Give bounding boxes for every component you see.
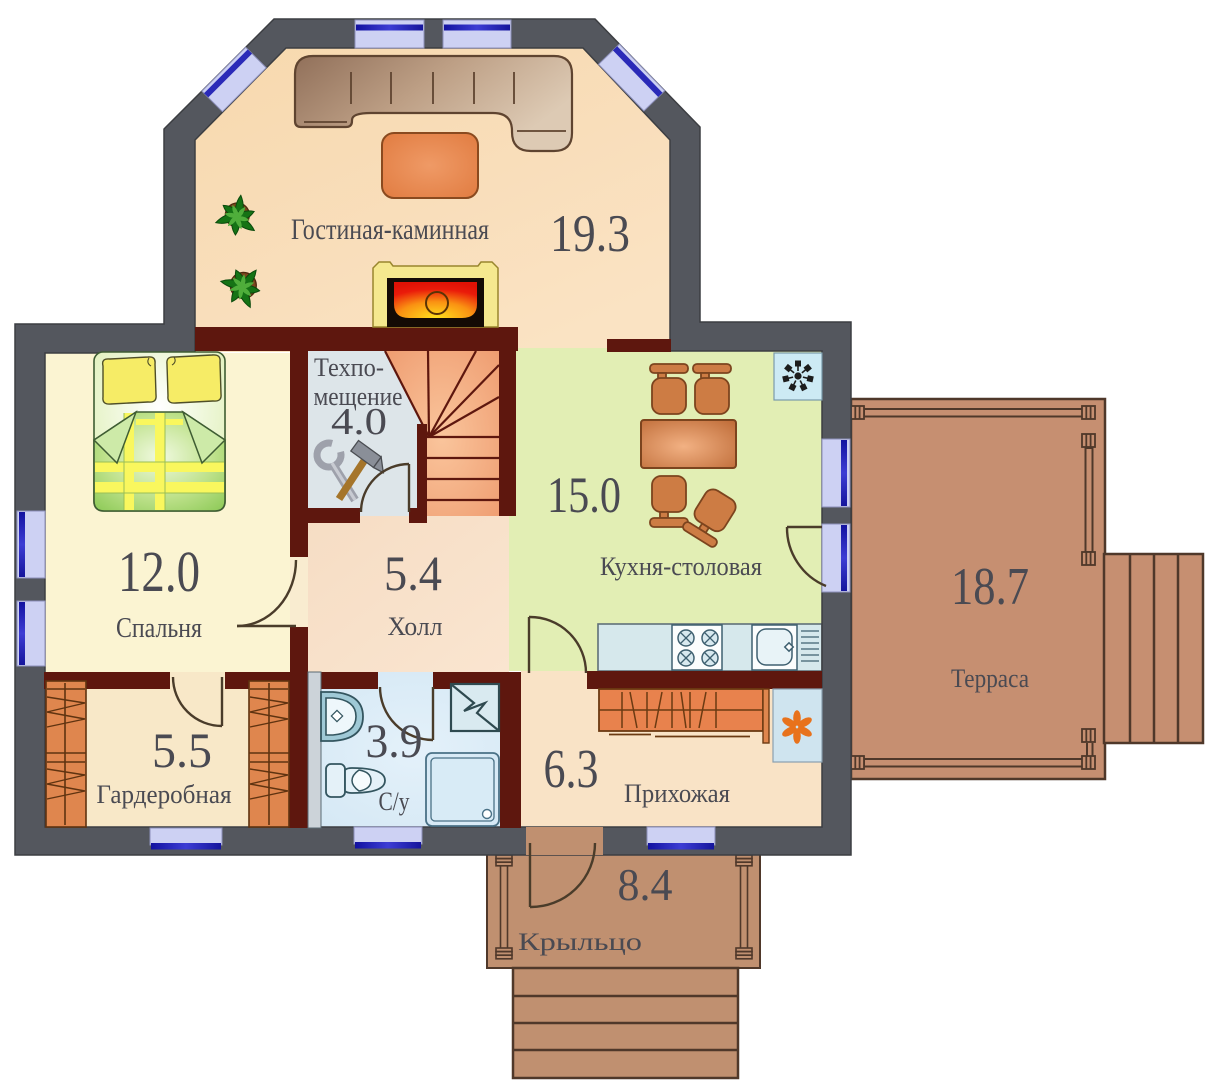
svg-text:12.0: 12.0 bbox=[118, 539, 200, 604]
svg-text:Крыльцо: Крыльцо bbox=[518, 929, 642, 956]
svg-text:Холл: Холл bbox=[388, 612, 443, 641]
svg-text:Гардеробная: Гардеробная bbox=[97, 780, 232, 809]
svg-text:19.3: 19.3 bbox=[550, 205, 630, 263]
svg-text:6.3: 6.3 bbox=[544, 738, 599, 799]
svg-text:Терраса: Терраса bbox=[951, 664, 1029, 693]
svg-text:Кухня-столовая: Кухня-столовая bbox=[600, 552, 762, 581]
svg-text:Гостиная-каминная: Гостиная-каминная bbox=[291, 213, 489, 246]
svg-text:Спальня: Спальня bbox=[116, 612, 202, 644]
svg-text:15.0: 15.0 bbox=[547, 468, 621, 524]
svg-text:5.5: 5.5 bbox=[152, 722, 212, 778]
svg-text:5.4: 5.4 bbox=[384, 545, 442, 601]
svg-text:4.0: 4.0 bbox=[331, 401, 387, 443]
svg-text:3.9: 3.9 bbox=[366, 715, 423, 768]
svg-text:Техпо-: Техпо- bbox=[314, 353, 384, 382]
svg-text:18.7: 18.7 bbox=[951, 558, 1029, 616]
svg-text:С/у: С/у bbox=[379, 787, 410, 816]
svg-text:8.4: 8.4 bbox=[618, 860, 673, 910]
svg-text:Прихожая: Прихожая bbox=[624, 779, 730, 808]
